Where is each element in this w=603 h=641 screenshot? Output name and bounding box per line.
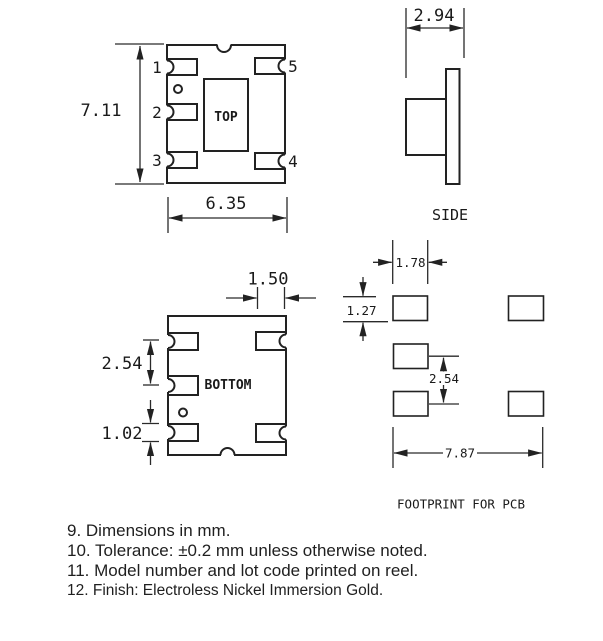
- dim-150-label: 1.50: [248, 270, 289, 290]
- bottom-castellation-left-2: [168, 379, 175, 392]
- footprint-view: 1.78 1.27 2.54 7.87 FOOTPRINT FOR PCB: [343, 240, 544, 512]
- dim-254f-label: 2.54: [429, 371, 459, 386]
- pin1-indicator-dot: [174, 85, 182, 93]
- castellation-pin2: [167, 106, 174, 119]
- pin1-number: 1: [152, 58, 162, 77]
- notes-block: 9. Dimensions in mm. 10. Tolerance: ±0.2…: [67, 521, 428, 601]
- dim-254b-label: 2.54: [102, 354, 143, 374]
- note-9: 9. Dimensions in mm.: [67, 521, 428, 541]
- dim-294-label: 2.94: [414, 6, 455, 26]
- bottom-view: BOTTOM 1.50 2.54 1.02: [102, 270, 316, 466]
- castellation-pin3: [167, 154, 174, 167]
- side-body-vertical: [446, 69, 460, 184]
- side-view: 2.94 SIDE: [406, 6, 468, 224]
- pin5-number: 5: [288, 57, 298, 76]
- bottom-castellation-right-2: [280, 427, 287, 440]
- bottom-orientation-notch: [221, 448, 235, 455]
- footprint-pad-left-1: [393, 296, 428, 321]
- bottom-castellation-right-1: [280, 335, 287, 348]
- bottom-castellation-left-1: [168, 335, 175, 348]
- package-drawing-page: TOP 1 2 3 5 4 7.11 6.35: [0, 0, 603, 641]
- footprint-pad-left-3: [394, 392, 429, 417]
- dim-178-label: 1.78: [395, 255, 425, 270]
- dim-127-label: 1.27: [346, 303, 376, 318]
- bottom-pin1-indicator-dot: [179, 409, 187, 417]
- castellation-pin1: [167, 61, 174, 74]
- bottom-castellation-left-3: [168, 426, 175, 439]
- note-11: 11. Model number and lot code printed on…: [67, 561, 428, 581]
- pin3-number: 3: [152, 151, 162, 170]
- pin2-number: 2: [152, 103, 162, 122]
- side-body-tab: [406, 99, 446, 155]
- note-12: 12. Finish: Electroless Nickel Immersion…: [67, 581, 428, 601]
- note-10: 10. Tolerance: ±0.2 mm unless otherwise …: [67, 541, 428, 561]
- footprint-pad-right-2: [509, 392, 544, 417]
- castellation-pin4: [279, 155, 285, 168]
- dim-635-label: 6.35: [206, 194, 247, 214]
- footprint-pad-left-2: [394, 344, 429, 369]
- footprint-view-label: FOOTPRINT FOR PCB: [397, 497, 525, 512]
- top-orientation-notch: [217, 45, 231, 52]
- top-view: TOP 1 2 3 5 4 7.11 6.35: [81, 43, 298, 233]
- side-view-label: SIDE: [432, 206, 468, 224]
- footprint-pad-right-1: [509, 296, 544, 321]
- pin4-number: 4: [288, 152, 298, 171]
- castellation-pin5: [279, 60, 285, 73]
- dim-102-label: 1.02: [102, 424, 143, 444]
- dim-787-label: 7.87: [445, 446, 475, 461]
- dim-711-label: 7.11: [81, 101, 122, 121]
- top-view-label: TOP: [214, 110, 238, 125]
- bottom-view-label: BOTTOM: [205, 378, 252, 393]
